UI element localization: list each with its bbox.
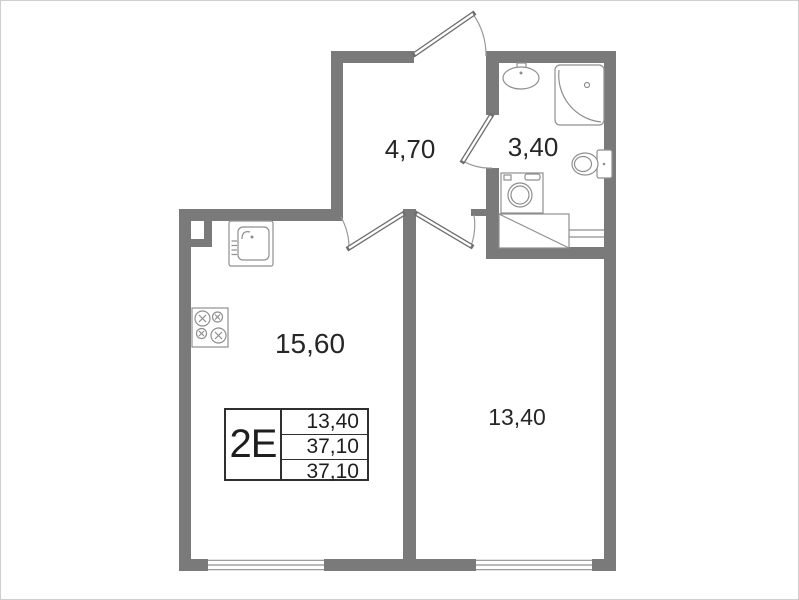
wall-right bbox=[604, 51, 616, 571]
bathroom-area-label: 3,40 bbox=[508, 132, 559, 162]
bedroom-door-leaf-fill bbox=[417, 214, 471, 246]
corner-bathtub-icon bbox=[555, 65, 604, 125]
floorplan-drawing: 4,70 3,40 15,60 13,40 bbox=[1, 1, 798, 599]
bedroom-door-icon bbox=[417, 214, 475, 246]
unit-total-area-reduced: 37,10 bbox=[282, 460, 367, 484]
bathroom-door-arc bbox=[463, 161, 492, 168]
kitchen-door-icon bbox=[341, 214, 403, 248]
stove-icon bbox=[192, 308, 228, 347]
washing-machine-icon bbox=[501, 173, 543, 213]
duct-lines bbox=[569, 230, 604, 237]
bedroom-area-label: 13,40 bbox=[488, 404, 546, 430]
entrance-door-arc bbox=[473, 14, 486, 56]
unit-info-table: 2E 13,40 37,10 37,10 bbox=[224, 408, 369, 481]
entrance-door-icon bbox=[415, 14, 486, 56]
wall-central bbox=[403, 209, 416, 571]
unit-area-rows: 13,40 37,10 37,10 bbox=[282, 410, 367, 479]
unit-living-area: 13,40 bbox=[282, 410, 367, 435]
wall-bath-left-upper bbox=[486, 51, 499, 115]
hallway-area-label: 4,70 bbox=[385, 134, 436, 164]
unit-code: 2E bbox=[226, 410, 282, 479]
wall-corner-niche-horizontal bbox=[189, 239, 212, 247]
wall-kitchen-top bbox=[179, 209, 338, 221]
wall-bedroom-door-jamb bbox=[471, 209, 486, 216]
walls bbox=[179, 51, 616, 571]
bathroom-door-icon bbox=[463, 116, 492, 168]
kitchen-living-area-label: 15,60 bbox=[275, 328, 345, 359]
kitchen-sink-icon bbox=[229, 221, 273, 266]
wall-hall-top bbox=[331, 51, 414, 63]
wall-left bbox=[179, 209, 191, 571]
unit-total-area: 37,10 bbox=[282, 435, 367, 460]
ventilation-shaft-icon bbox=[499, 214, 569, 248]
kitchen-door-arc bbox=[341, 217, 349, 248]
toilet-icon bbox=[572, 150, 612, 178]
wall-bath-top bbox=[486, 51, 616, 63]
doors bbox=[341, 14, 492, 248]
wall-bath-bottom bbox=[486, 247, 616, 259]
floorplan-image: 4,70 3,40 15,60 13,40 2E 13,40 37,10 37,… bbox=[0, 0, 799, 600]
bedroom-door-arc bbox=[471, 215, 475, 246]
wall-bath-left-lower bbox=[486, 168, 499, 259]
bathroom-door-leaf-fill bbox=[463, 116, 491, 161]
wall-hall-left bbox=[331, 51, 343, 221]
entrance-door-leaf-fill bbox=[415, 14, 473, 54]
bathroom-sink-icon bbox=[503, 63, 539, 89]
kitchen-door-leaf-fill bbox=[349, 214, 403, 248]
